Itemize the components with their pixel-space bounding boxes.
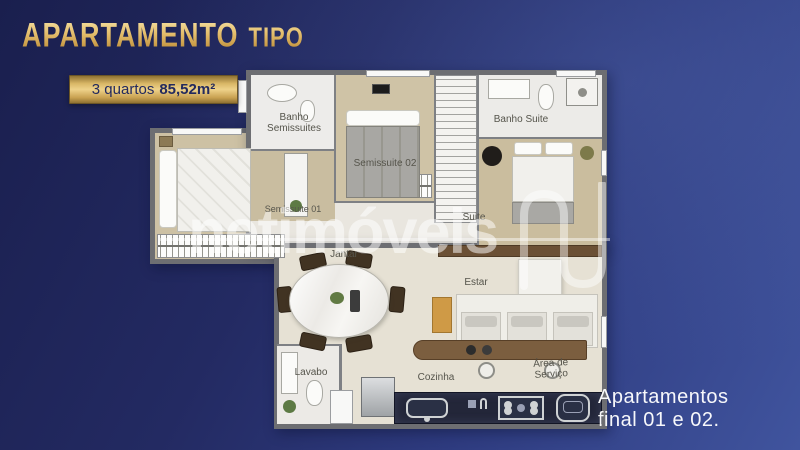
kitchen-sink-icon bbox=[406, 398, 448, 418]
washtub-icon bbox=[556, 394, 590, 422]
title-sub: TIPO bbox=[249, 21, 304, 54]
badge-quartos: 3 quartos bbox=[92, 81, 155, 98]
island-sink-icon bbox=[482, 345, 492, 355]
plant-icon bbox=[283, 400, 296, 413]
area-badge: 3 quartos 85,52m² bbox=[69, 75, 238, 104]
label-estar: Estar bbox=[448, 277, 504, 288]
footnote: Apartamentos final 01 e 02. bbox=[598, 386, 729, 432]
entry-door bbox=[330, 390, 353, 424]
toilet-icon bbox=[538, 84, 554, 110]
label-banho-semissuites: Banho Semissuites bbox=[259, 112, 329, 134]
badge-area: 85,52m² bbox=[159, 81, 215, 98]
footnote-line2: final 01 e 02. bbox=[598, 409, 729, 432]
toilet-icon bbox=[306, 380, 323, 406]
bed-pillow bbox=[545, 142, 573, 155]
label-lavabo: Lavabo bbox=[286, 367, 336, 378]
faucet-icon bbox=[424, 416, 430, 422]
label-banho-suite: Banho Suite bbox=[486, 114, 556, 125]
bathroom-sink-icon bbox=[267, 84, 297, 102]
side-table bbox=[432, 297, 452, 333]
nightstand bbox=[159, 136, 173, 147]
armchair-round bbox=[482, 146, 502, 166]
label-text: Semissuites bbox=[259, 123, 329, 134]
plant-icon bbox=[580, 146, 594, 160]
watermark-text: netimóveis bbox=[188, 196, 497, 268]
window bbox=[556, 70, 596, 77]
window bbox=[601, 150, 607, 176]
door-panel bbox=[238, 80, 247, 113]
label-text: Banho bbox=[259, 112, 329, 123]
label-semissuite-02: Semissuite 02 bbox=[335, 158, 435, 169]
island-sink-icon bbox=[466, 345, 476, 355]
footnote-line1: Apartamentos bbox=[598, 386, 729, 409]
bed-pillow bbox=[346, 110, 420, 126]
label-cozinha: Cozinha bbox=[406, 372, 466, 383]
window bbox=[601, 316, 607, 348]
dishwasher bbox=[361, 377, 395, 417]
sofa-pillow bbox=[511, 316, 543, 327]
sofa-pillow bbox=[557, 316, 589, 327]
label-area-servico: Área de Serviço bbox=[519, 356, 582, 381]
table-centerpiece bbox=[330, 292, 344, 304]
page-title: APARTAMENTO TIPO bbox=[22, 16, 304, 56]
shower-drain-icon bbox=[578, 88, 587, 97]
window bbox=[172, 128, 242, 135]
tv-icon bbox=[372, 84, 390, 94]
stool bbox=[478, 362, 495, 379]
counter-glyph-icon bbox=[480, 398, 487, 409]
netimoveis-logo-icon bbox=[514, 182, 606, 294]
counter-glyph-icon bbox=[468, 400, 476, 408]
cooktop-icon bbox=[498, 396, 544, 420]
title-main: APARTAMENTO bbox=[22, 16, 239, 56]
sofa-pillow bbox=[465, 316, 497, 327]
marketing-slide: Banho Semissuites Semissuite 02 Banho Su… bbox=[0, 0, 800, 450]
bed-pillow bbox=[159, 150, 177, 228]
bed-pillow bbox=[514, 142, 542, 155]
window bbox=[366, 70, 430, 77]
wall-divider bbox=[334, 75, 336, 203]
table-runner bbox=[350, 290, 360, 312]
wall-divider bbox=[479, 137, 602, 139]
dining-chair bbox=[388, 286, 405, 313]
wall-divider bbox=[251, 149, 335, 151]
bathroom-counter bbox=[488, 79, 530, 99]
